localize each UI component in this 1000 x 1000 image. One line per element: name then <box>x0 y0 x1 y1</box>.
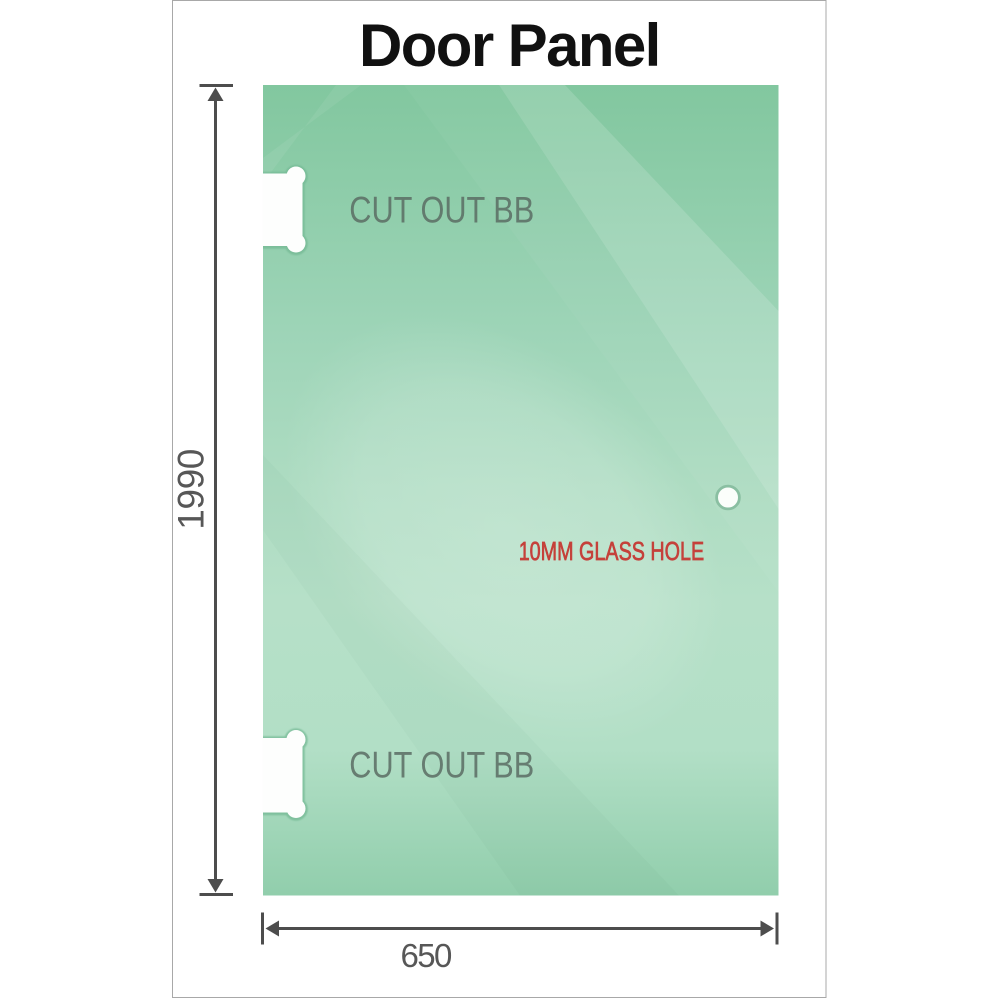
svg-text:CUT OUT BB: CUT OUT BB <box>349 190 534 231</box>
svg-text:10MM GLASS HOLE: 10MM GLASS HOLE <box>519 537 704 566</box>
svg-text:CUT OUT BB: CUT OUT BB <box>349 745 534 786</box>
svg-text:1990: 1990 <box>171 449 212 530</box>
svg-text:650: 650 <box>401 937 453 974</box>
svg-text:Door Panel: Door Panel <box>359 12 660 79</box>
